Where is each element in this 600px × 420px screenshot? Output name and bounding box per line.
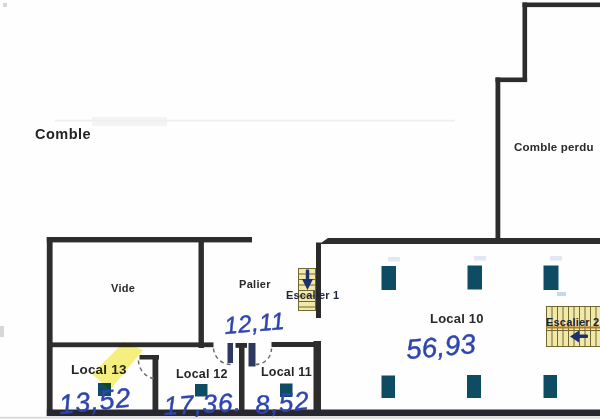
svg-text:Local 10: Local 10 — [430, 311, 484, 326]
svg-text:Comble perdu: Comble perdu — [514, 141, 594, 153]
svg-text:Escalier 2: Escalier 2 — [546, 316, 599, 328]
svg-text:Vide: Vide — [111, 282, 135, 294]
svg-text:Local 12: Local 12 — [176, 367, 228, 381]
svg-text:Comble: Comble — [35, 126, 91, 142]
svg-text:Palier: Palier — [239, 278, 271, 290]
svg-text:8,52: 8,52 — [254, 385, 311, 420]
svg-text:12,11: 12,11 — [223, 307, 286, 339]
svg-text:Escalier 1: Escalier 1 — [286, 289, 339, 301]
svg-text:56,93: 56,93 — [405, 328, 478, 365]
svg-text:Local 11: Local 11 — [261, 365, 312, 379]
svg-text:17,36.: 17,36. — [163, 387, 243, 420]
